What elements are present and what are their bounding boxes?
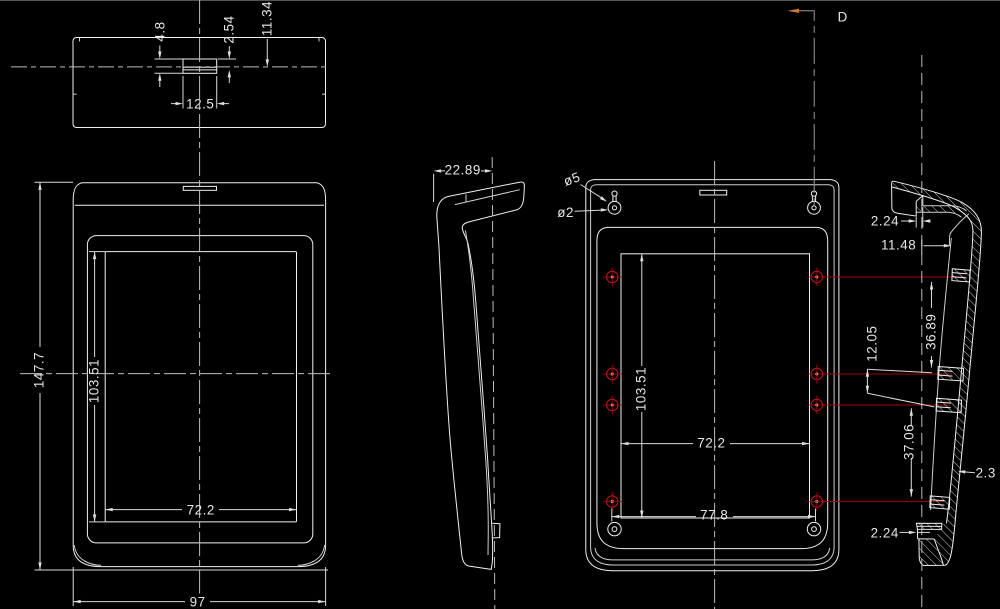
svg-text:2.24: 2.24 <box>871 214 899 229</box>
svg-text:103.51: 103.51 <box>87 359 102 403</box>
svg-text:D: D <box>838 10 848 25</box>
svg-text:72.2: 72.2 <box>187 502 215 517</box>
svg-text:77.8: 77.8 <box>700 508 728 523</box>
svg-text:2.24: 2.24 <box>871 526 899 541</box>
svg-text:72.2: 72.2 <box>697 436 725 451</box>
svg-text:2.3: 2.3 <box>976 466 996 481</box>
svg-text:11.34: 11.34 <box>260 1 275 36</box>
svg-text:37.06: 37.06 <box>901 424 916 460</box>
svg-text:36.89: 36.89 <box>923 314 938 350</box>
svg-text:ø2: ø2 <box>557 205 574 220</box>
svg-text:97: 97 <box>190 594 206 609</box>
svg-text:12.05: 12.05 <box>864 325 879 361</box>
svg-text:22.89: 22.89 <box>445 163 481 178</box>
svg-text:11.48: 11.48 <box>881 238 916 253</box>
svg-text:103.51: 103.51 <box>634 367 649 411</box>
svg-text:147.7: 147.7 <box>31 352 46 388</box>
svg-text:2.54: 2.54 <box>222 15 237 43</box>
svg-text:12.5: 12.5 <box>186 96 214 111</box>
svg-text:4.8: 4.8 <box>153 21 168 41</box>
